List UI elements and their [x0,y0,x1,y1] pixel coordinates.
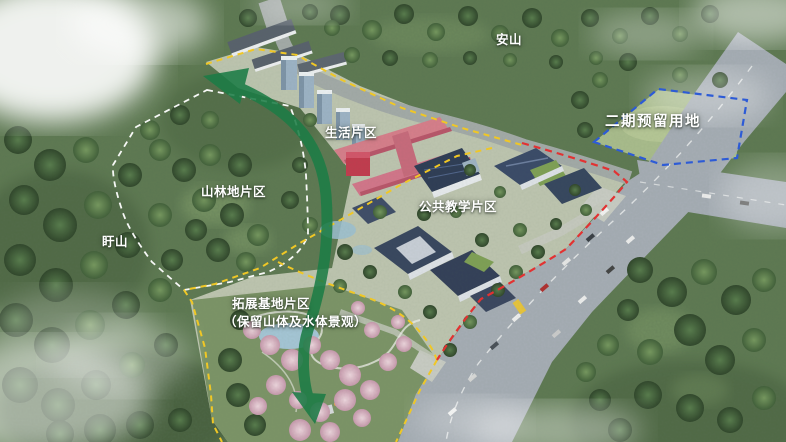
label-phase2-reserved-land: 二期预留用地 [605,110,701,131]
label-public-teaching-zone: 公共教学片区 [419,196,497,215]
label-mountain-forest-zone: 山林地片区 [201,181,266,200]
campus-masterplan-rendering: 安山 二期预留用地 生活片区 山林地片区 盱山 公共教学片区 拓展基地片区 （保… [0,0,786,442]
label-living-area: 生活片区 [325,122,377,141]
label-expansion-base-zone: 拓展基地片区 [232,293,310,312]
scene-canvas [0,0,786,442]
label-anshan: 安山 [496,29,522,48]
label-xushan: 盱山 [102,231,128,250]
label-expansion-base-note: （保留山体及水体景观） [224,311,367,330]
